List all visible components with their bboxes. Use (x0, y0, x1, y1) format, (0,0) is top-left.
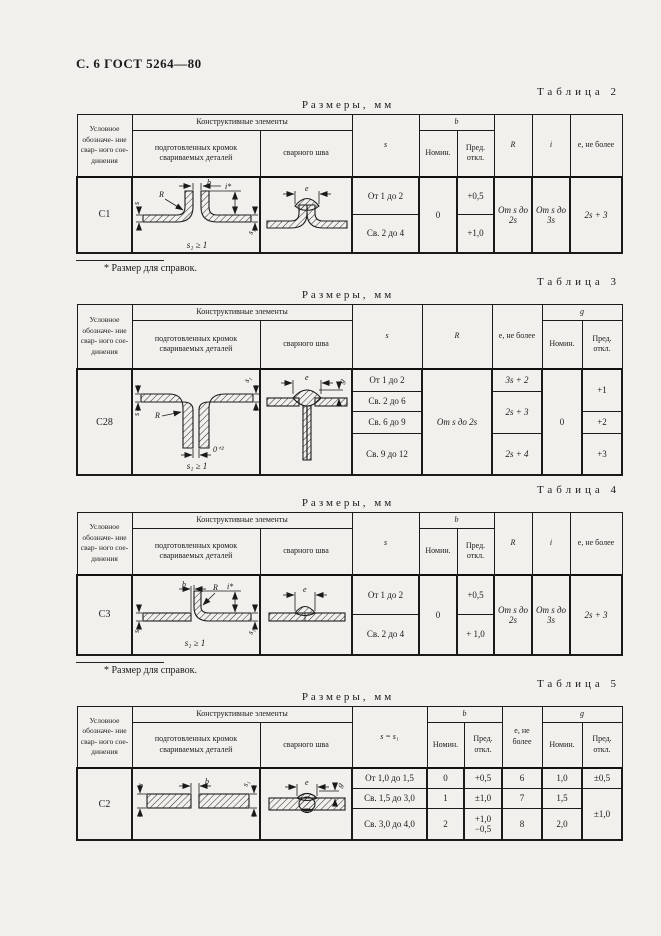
c28-weld-diagram-cell: e g (260, 369, 352, 475)
cell-b-deviation: ±1,0 (464, 788, 502, 808)
joint-code-c2: С2 (77, 768, 132, 840)
c28-prep-diagram: s s₁ R 0⁺² s₁ ≥ 1 (135, 372, 259, 472)
cell-s-range: От 1 до 2 (352, 177, 419, 215)
cell-b-nominal: 0 (427, 768, 464, 788)
col-R: R (494, 115, 532, 177)
c2-weld-diagram-cell: e g (260, 768, 352, 840)
col-b: b (419, 115, 494, 131)
footnote-rule (76, 260, 164, 261)
col-prep-edges: подготовленных кромок свариваемых детале… (132, 131, 260, 177)
footnote-block: * Размер для справок. (76, 260, 620, 274)
cell-g-deviation: +2 (582, 411, 622, 433)
cell-e-value: 7 (502, 788, 542, 808)
cell-g-deviation: +1 (582, 369, 622, 411)
footnote-block: * Размер для справок. (76, 662, 620, 676)
col-e-max: e, не более (492, 304, 542, 369)
col-e-max: e, не более (502, 706, 542, 768)
c3-prep-diagram-cell: b R i* s s₁ s₁ ≥ 1 (132, 575, 260, 655)
c28-weld-diagram: e g (263, 372, 351, 472)
cell-s-range: Св. 2 до 6 (352, 391, 422, 411)
table3-sizes-label: Размеры, мм (76, 289, 620, 301)
cell-b-nominal: 1 (427, 788, 464, 808)
cell-g-nominal: 0 (542, 369, 582, 475)
footnote-text: * Размер для справок. (76, 263, 620, 274)
col-elements: Конструктивные элементы (132, 304, 352, 320)
cell-g-deviation: ±1,0 (582, 788, 622, 840)
table-5: Условное обозначе- ние свар- ного сое- д… (76, 706, 623, 842)
col-nominal: Номин. (542, 722, 582, 768)
c3-prep-diagram: b R i* s s₁ s₁ ≥ 1 (135, 581, 259, 649)
dim-label-s1: s₁ (242, 374, 253, 384)
table-4: Условное обозначе- ние свар- ного сое- д… (76, 512, 623, 656)
cell-g-deviation: ±0,5 (582, 768, 622, 788)
cell-b-nominal: 0 (419, 575, 457, 655)
dim-label-s: s (135, 201, 141, 204)
dim-label-R: R (158, 190, 164, 199)
dim-label-b: b (182, 581, 186, 589)
cell-s-range: От 1,0 до 1,5 (352, 768, 427, 788)
dim-label-e: e (305, 778, 309, 787)
cell-R-value: От s до 2s (494, 177, 532, 253)
cell-g-nominal: 1,0 (542, 768, 582, 788)
col-designation: Условное обозначе- ние свар- ного сое- д… (77, 706, 132, 768)
col-weld-seam: сварного шва (260, 320, 352, 369)
cell-b-deviation: +0,5 (457, 575, 494, 615)
dim-label-g: g (337, 377, 347, 385)
joint-code-c28: С28 (77, 369, 132, 475)
col-R: R (494, 513, 532, 575)
dim-label-g: g (335, 781, 345, 789)
col-s-eq-s1: s = s₁ (352, 706, 427, 768)
col-nominal: Номин. (419, 131, 457, 177)
dim-label-i: i* (225, 182, 231, 191)
col-weld-seam: сварного шва (260, 529, 352, 575)
joint-code-c1: С1 (77, 177, 132, 253)
cell-s-range: Св. 1,5 до 3,0 (352, 788, 427, 808)
c3-weld-diagram-cell: e (260, 575, 352, 655)
col-R: R (422, 304, 492, 369)
col-prep-edges: подготовленных кромок свариваемых детале… (132, 529, 260, 575)
footnote-rule (76, 662, 164, 663)
diagram-caption: s₁ ≥ 1 (187, 240, 208, 250)
cell-b-nominal: 2 (427, 808, 464, 840)
cell-e-value: 2s + 4 (492, 433, 542, 475)
cell-e-value: 2s + 3 (570, 177, 622, 253)
col-deviation: Пред. откл. (464, 722, 502, 768)
c2-prep-diagram-cell: s b s₁ (132, 768, 260, 840)
diagram-caption: s₁ ≥ 1 (185, 638, 206, 648)
c1-prep-diagram-cell: b i* s s₁ R s₁ ≥ 1 (132, 177, 260, 253)
diagram-caption: s₁ ≥ 1 (187, 461, 208, 471)
cell-g-nominal: 2,0 (542, 808, 582, 840)
col-e-max: e, не более (570, 115, 622, 177)
cell-s-range: Св. 2 до 4 (352, 215, 419, 253)
col-i: i (532, 115, 570, 177)
table-3: Условное обозначе- ние свар- ного сое- д… (76, 304, 623, 477)
cell-b-deviation: +1,0 (457, 215, 494, 253)
col-prep-edges: подготовленных кромок свариваемых детале… (132, 722, 260, 768)
dim-label-b: b (205, 778, 209, 786)
col-g: g (542, 304, 622, 320)
cell-R-value: От s до 2s (494, 575, 532, 655)
c28-prep-diagram-cell: s s₁ R 0⁺² s₁ ≥ 1 (132, 369, 260, 475)
cell-i-value: От s до 3s (532, 177, 570, 253)
table5-sizes-label: Размеры, мм (76, 691, 620, 703)
scanned-page: С. 6 ГОСТ 5264—80 Таблица 2 Размеры, мм … (0, 0, 661, 936)
col-weld-seam: сварного шва (260, 131, 352, 177)
col-g: g (542, 706, 622, 722)
dim-label-e: e (305, 184, 309, 193)
col-weld-seam: сварного шва (260, 722, 352, 768)
col-elements: Конструктивные элементы (132, 706, 352, 722)
col-prep-edges: подготовленных кромок свариваемых детале… (132, 320, 260, 369)
dim-label-gap: 0⁺² (213, 445, 224, 454)
c1-prep-diagram: b i* s s₁ R s₁ ≥ 1 (135, 179, 259, 251)
col-nominal: Номин. (542, 320, 582, 369)
cell-s-range: От 1 до 2 (352, 575, 419, 615)
dim-label-R: R (154, 411, 160, 420)
page-title: С. 6 ГОСТ 5264—80 (76, 56, 620, 72)
col-deviation: Пред. откл. (582, 320, 622, 369)
table-2: Условное обозначе- ние свар- ного сое- д… (76, 114, 623, 254)
col-designation: Условное обозначе- ние свар- ного сое- д… (77, 304, 132, 369)
cell-i-value: От s до 3s (532, 575, 570, 655)
table4-sizes-label: Размеры, мм (76, 497, 620, 509)
dim-label-s: s (135, 629, 141, 632)
c1-weld-diagram: e (263, 183, 351, 247)
dim-label-e: e (305, 373, 309, 382)
col-s: s (352, 513, 419, 575)
dim-label-b: b (207, 179, 211, 187)
cell-e-value: 6 (502, 768, 542, 788)
dim-label-s: s (135, 782, 145, 788)
col-b: b (419, 513, 494, 529)
dim-label-i: i* (227, 582, 233, 591)
col-deviation: Пред. откл. (582, 722, 622, 768)
col-s: s (352, 115, 419, 177)
dim-label-e: e (303, 585, 307, 594)
col-e-max: e, не более (570, 513, 622, 575)
c2-prep-diagram: s b s₁ (135, 778, 259, 830)
col-elements: Конструктивные элементы (132, 513, 352, 529)
cell-s-range: Св. 2 до 4 (352, 615, 419, 655)
col-s: s (352, 304, 422, 369)
cell-s-range: Св. 9 до 12 (352, 433, 422, 475)
cell-g-deviation: +3 (582, 433, 622, 475)
cell-s-range: Св. 3,0 до 4,0 (352, 808, 427, 840)
cell-b-deviation: +1,0 −0,5 (464, 808, 502, 840)
col-b: b (427, 706, 502, 722)
cell-e-value: 3s + 2 (492, 369, 542, 391)
cell-R-value: От s до 2s (422, 369, 492, 475)
col-designation: Условное обозначе- ние свар- ного сое- д… (77, 513, 132, 575)
cell-e-value: 8 (502, 808, 542, 840)
col-i: i (532, 513, 570, 575)
c3-weld-diagram: e (263, 583, 351, 647)
cell-s-range: Св. 6 до 9 (352, 411, 422, 433)
footnote-text: * Размер для справок. (76, 665, 620, 676)
dim-label-s: s (135, 413, 141, 416)
cell-b-nominal: 0 (419, 177, 457, 253)
col-elements: Конструктивные элементы (132, 115, 352, 131)
cell-b-deviation: + 1,0 (457, 615, 494, 655)
table4-caption: Таблица 4 (76, 484, 620, 496)
table3-caption: Таблица 3 (76, 276, 620, 288)
c1-weld-diagram-cell: e (260, 177, 352, 253)
table5-caption: Таблица 5 (76, 678, 620, 690)
cell-b-deviation: +0,5 (457, 177, 494, 215)
col-designation: Условное обозначе- ние свар- ного сое- д… (77, 115, 132, 177)
cell-e-value: 2s + 3 (492, 391, 542, 433)
cell-e-value: 2s + 3 (570, 575, 622, 655)
col-deviation: Пред. откл. (457, 131, 494, 177)
cell-s-range: От 1 до 2 (352, 369, 422, 391)
table2-sizes-label: Размеры, мм (76, 99, 620, 111)
joint-code-c3: С3 (77, 575, 132, 655)
col-nominal: Номин. (427, 722, 464, 768)
c2-weld-diagram: e g (263, 778, 351, 830)
col-nominal: Номин. (419, 529, 457, 575)
col-deviation: Пред. откл. (457, 529, 494, 575)
cell-b-deviation: +0,5 (464, 768, 502, 788)
dim-label-s1: s₁ (240, 779, 251, 788)
cell-g-nominal: 1,5 (542, 788, 582, 808)
table2-caption: Таблица 2 (76, 86, 620, 98)
